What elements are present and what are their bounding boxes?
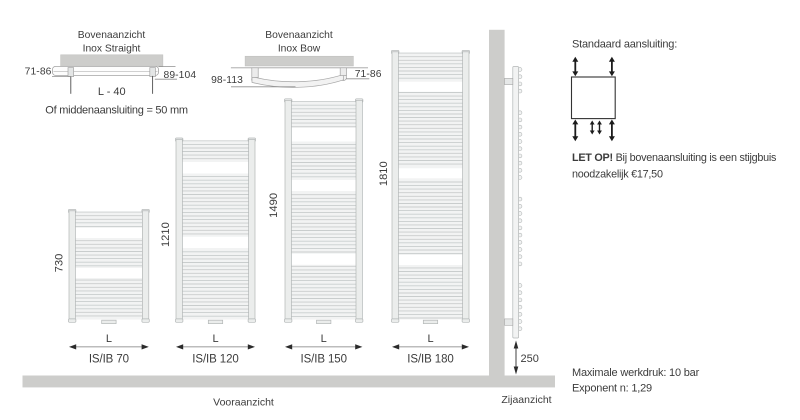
svg-text:Standaard aansluiting:: Standaard aansluiting: [572, 39, 677, 51]
svg-text:IS/IB 120: IS/IB 120 [192, 354, 238, 366]
svg-text:Vooraanzicht: Vooraanzicht [213, 397, 274, 409]
svg-text:IS/IB 180: IS/IB 180 [407, 354, 453, 366]
svg-text:Exponent n: 1,29: Exponent n: 1,29 [572, 383, 652, 395]
svg-text:Inox Bow: Inox Bow [278, 44, 321, 55]
svg-text:Bovenaanzicht: Bovenaanzicht [78, 30, 146, 41]
svg-text:L: L [106, 333, 112, 345]
svg-text:Bovenaanzicht: Bovenaanzicht [265, 30, 333, 41]
svg-text:L: L [427, 333, 433, 345]
svg-text:Maximale werkdruk: 10 bar: Maximale werkdruk: 10 bar [572, 367, 700, 379]
svg-text:1210: 1210 [160, 222, 172, 247]
svg-text:Of middenaansluiting = 50 mm: Of middenaansluiting = 50 mm [45, 104, 188, 116]
svg-text:L: L [212, 333, 218, 345]
svg-text:1490: 1490 [268, 193, 280, 218]
svg-text:IS/IB 70: IS/IB 70 [89, 354, 129, 366]
svg-text:71-86: 71-86 [25, 67, 52, 78]
svg-text:IS/IB 150: IS/IB 150 [300, 354, 346, 366]
svg-text:Zijaanzicht: Zijaanzicht [501, 394, 551, 406]
svg-text:250: 250 [521, 353, 539, 365]
svg-text:noodzakelijk €17,50: noodzakelijk €17,50 [572, 169, 663, 181]
svg-text:Inox Straight: Inox Straight [83, 44, 141, 55]
svg-text:98-113: 98-113 [211, 75, 243, 86]
svg-text:1810: 1810 [378, 161, 390, 186]
svg-text:L - 40: L - 40 [98, 86, 126, 98]
svg-text:LET OP! Bij bovenaansluiting i: LET OP! Bij bovenaansluiting is een stij… [572, 152, 777, 164]
svg-text:730: 730 [53, 254, 65, 273]
svg-text:L: L [321, 333, 327, 345]
